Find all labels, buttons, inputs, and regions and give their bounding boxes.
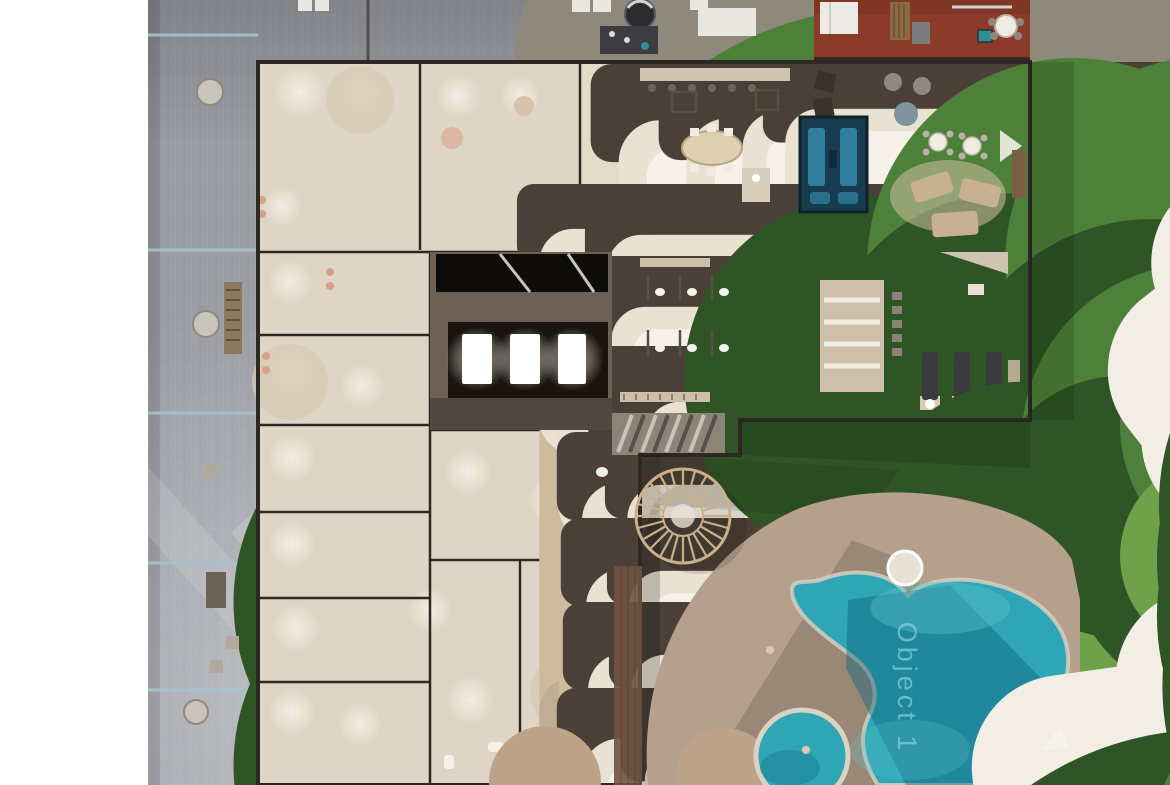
pool-platform	[888, 551, 922, 585]
floorplan-render: Object 1	[0, 0, 1170, 785]
elevator-core	[430, 252, 612, 430]
swimmer	[802, 746, 810, 754]
elevator-cab	[558, 334, 586, 384]
left-edge-shadow	[148, 0, 160, 785]
sunbather	[766, 646, 774, 654]
elevator-cab	[510, 334, 540, 384]
pool-watermark: Object 1	[892, 622, 922, 755]
staircase	[612, 413, 725, 455]
media-room	[800, 117, 867, 212]
site-plan: Object 1	[0, 0, 1170, 785]
elevator-cab	[462, 334, 492, 384]
floorplan-svg: Object 1	[0, 0, 1170, 785]
red-roof-terrace	[814, 0, 1030, 60]
